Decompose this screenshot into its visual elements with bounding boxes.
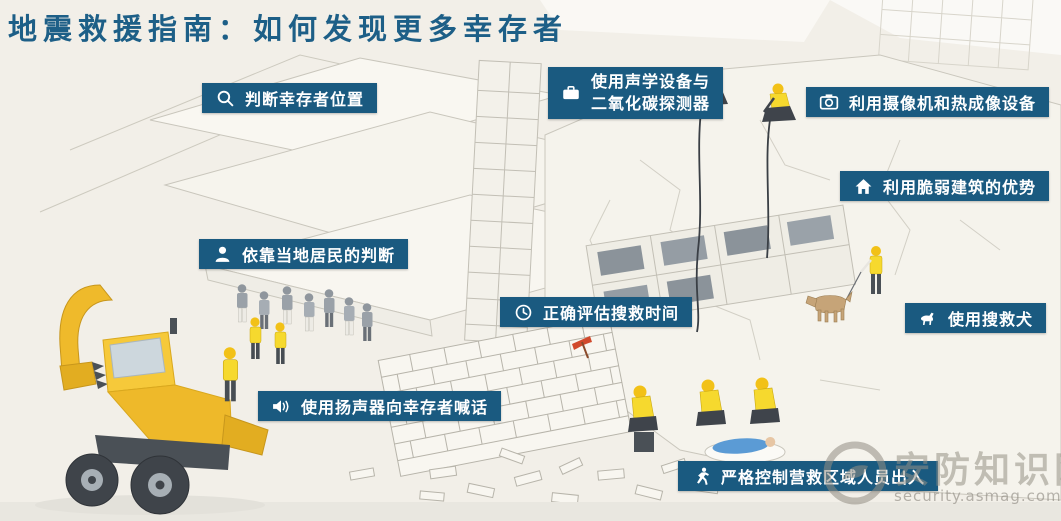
camera-icon	[819, 92, 839, 112]
runner-icon	[691, 466, 711, 486]
callout-label: 判断幸存者位置	[245, 86, 364, 110]
callout-label: 利用脆弱建筑的优势	[883, 174, 1036, 198]
callout-locate-survivors: 判断幸存者位置	[202, 83, 377, 113]
callout-acoustic-co2: 使用声学设备与 二氧化碳探测器	[548, 67, 723, 119]
callout-label-line2: 二氧化碳探测器	[591, 93, 710, 115]
callout-thermal-camera: 利用摄像机和热成像设备	[806, 87, 1049, 117]
clock-icon	[513, 302, 533, 322]
callout-local-residents: 依靠当地居民的判断	[199, 239, 408, 269]
callout-label: 正确评估搜救时间	[543, 300, 679, 324]
infographic-canvas: 地震救援指南：如何发现更多幸存者 判断幸存者位置 使用声学设备与 二氧化碳探测器…	[0, 0, 1061, 521]
magnifier-icon	[215, 88, 235, 108]
callout-control-access: 严格控制营救区域人员出入	[678, 461, 938, 491]
torn-paper-shape	[540, 0, 830, 42]
person-icon	[212, 244, 232, 264]
dog-icon	[918, 308, 938, 328]
callout-label: 利用摄像机和热成像设备	[849, 90, 1036, 114]
callout-label: 使用扬声器向幸存者喊话	[301, 394, 488, 418]
loudspeaker-icon	[271, 396, 291, 416]
detector-device-icon	[561, 83, 581, 103]
callout-label: 使用搜救犬	[948, 306, 1033, 330]
page-title: 地震救援指南：如何发现更多幸存者	[8, 6, 568, 48]
callout-loudspeaker: 使用扬声器向幸存者喊话	[258, 391, 501, 421]
callout-label-line1: 使用声学设备与	[591, 71, 710, 93]
callout-label: 严格控制营救区域人员出入	[721, 464, 925, 488]
rubble-scene-illustration	[0, 0, 1061, 521]
callout-rescue-dogs: 使用搜救犬	[905, 303, 1046, 333]
house-icon	[853, 176, 873, 196]
torn-paper-shape	[830, 0, 1061, 55]
callout-assess-time: 正确评估搜救时间	[500, 297, 692, 327]
excavator-illustration	[60, 285, 268, 514]
callout-fragile-buildings: 利用脆弱建筑的优势	[840, 171, 1049, 201]
callout-label: 依靠当地居民的判断	[242, 242, 395, 266]
